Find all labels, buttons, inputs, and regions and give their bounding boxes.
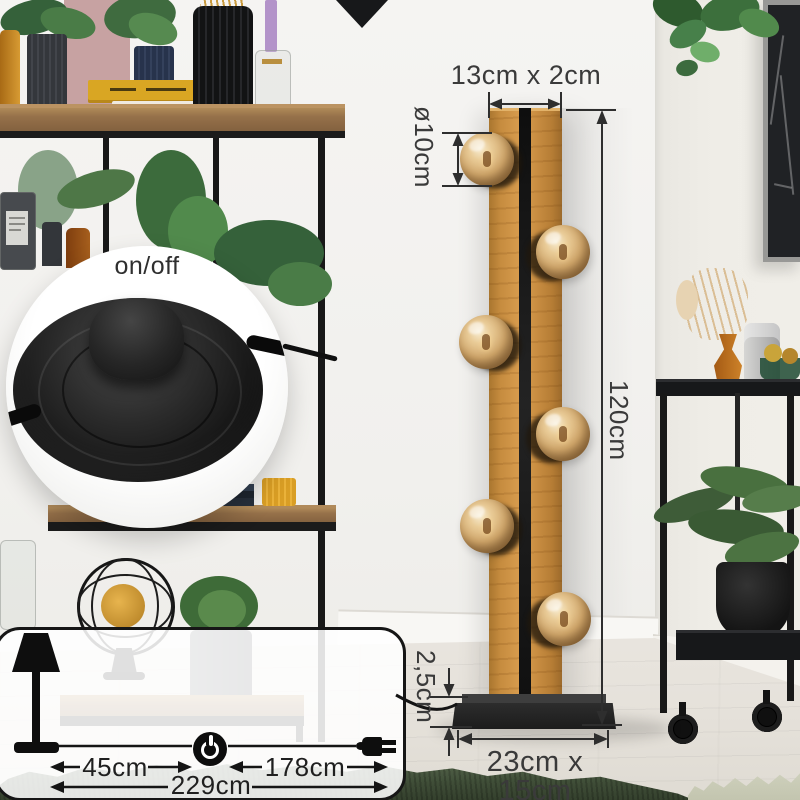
yellow-ribbed-cup bbox=[262, 478, 296, 506]
lamp-base bbox=[452, 703, 616, 729]
dimension-base-height: 2,5cm bbox=[413, 650, 439, 723]
ribbed-glass-cup bbox=[27, 34, 67, 104]
pear-fruit bbox=[764, 344, 782, 362]
glass-globe-bulb bbox=[536, 225, 590, 279]
glass-globe-bulb bbox=[536, 407, 590, 461]
pear-fruit bbox=[782, 348, 798, 364]
glass-globe-bulb bbox=[460, 499, 514, 553]
cart-top-shelf bbox=[656, 379, 800, 396]
power-button-icon bbox=[193, 732, 227, 766]
cart-caster-wheel bbox=[668, 714, 698, 744]
dimension-height: 120cm bbox=[606, 380, 632, 461]
product-photo-scene: on/off 13cm bbox=[0, 0, 800, 800]
purple-taper-candle bbox=[265, 0, 277, 52]
foot-switch-button bbox=[89, 298, 184, 380]
dimension-total-cord: 229cm bbox=[168, 772, 254, 798]
black-ribbed-vase bbox=[193, 6, 253, 119]
framed-map-poster bbox=[763, 0, 800, 262]
dried-pampas bbox=[676, 280, 698, 320]
cart-lower-shelf bbox=[676, 630, 800, 660]
cart-leg bbox=[660, 393, 667, 713]
glass-globe-bulb bbox=[460, 132, 514, 186]
glass-bottle-lower bbox=[0, 540, 36, 630]
amber-bottle bbox=[0, 30, 20, 104]
dimension-base-footprint: 23cm x 15cm bbox=[453, 748, 617, 800]
boxwood-plant bbox=[198, 590, 246, 630]
glass-globe-bulb bbox=[537, 592, 591, 646]
cart-caster-wheel bbox=[752, 702, 782, 732]
switch-inset-circle: on/off bbox=[6, 246, 288, 528]
shelf-frame-rail bbox=[0, 131, 345, 138]
shelf-frame-rail bbox=[48, 522, 336, 531]
dimension-bulb-diameter: ø10cm bbox=[411, 106, 437, 188]
lamp-base-top bbox=[462, 694, 606, 703]
glass-globe-bulb bbox=[459, 315, 513, 369]
dimension-switch-to-plug: 178cm bbox=[262, 754, 348, 780]
globe-gold-center bbox=[101, 584, 145, 628]
dimension-lamp-to-switch: 45cm bbox=[80, 754, 150, 780]
switch-inset-label: on/off bbox=[6, 254, 288, 279]
black-plant-pot bbox=[716, 562, 790, 640]
dimension-profile: 13cm x 2cm bbox=[448, 62, 604, 89]
